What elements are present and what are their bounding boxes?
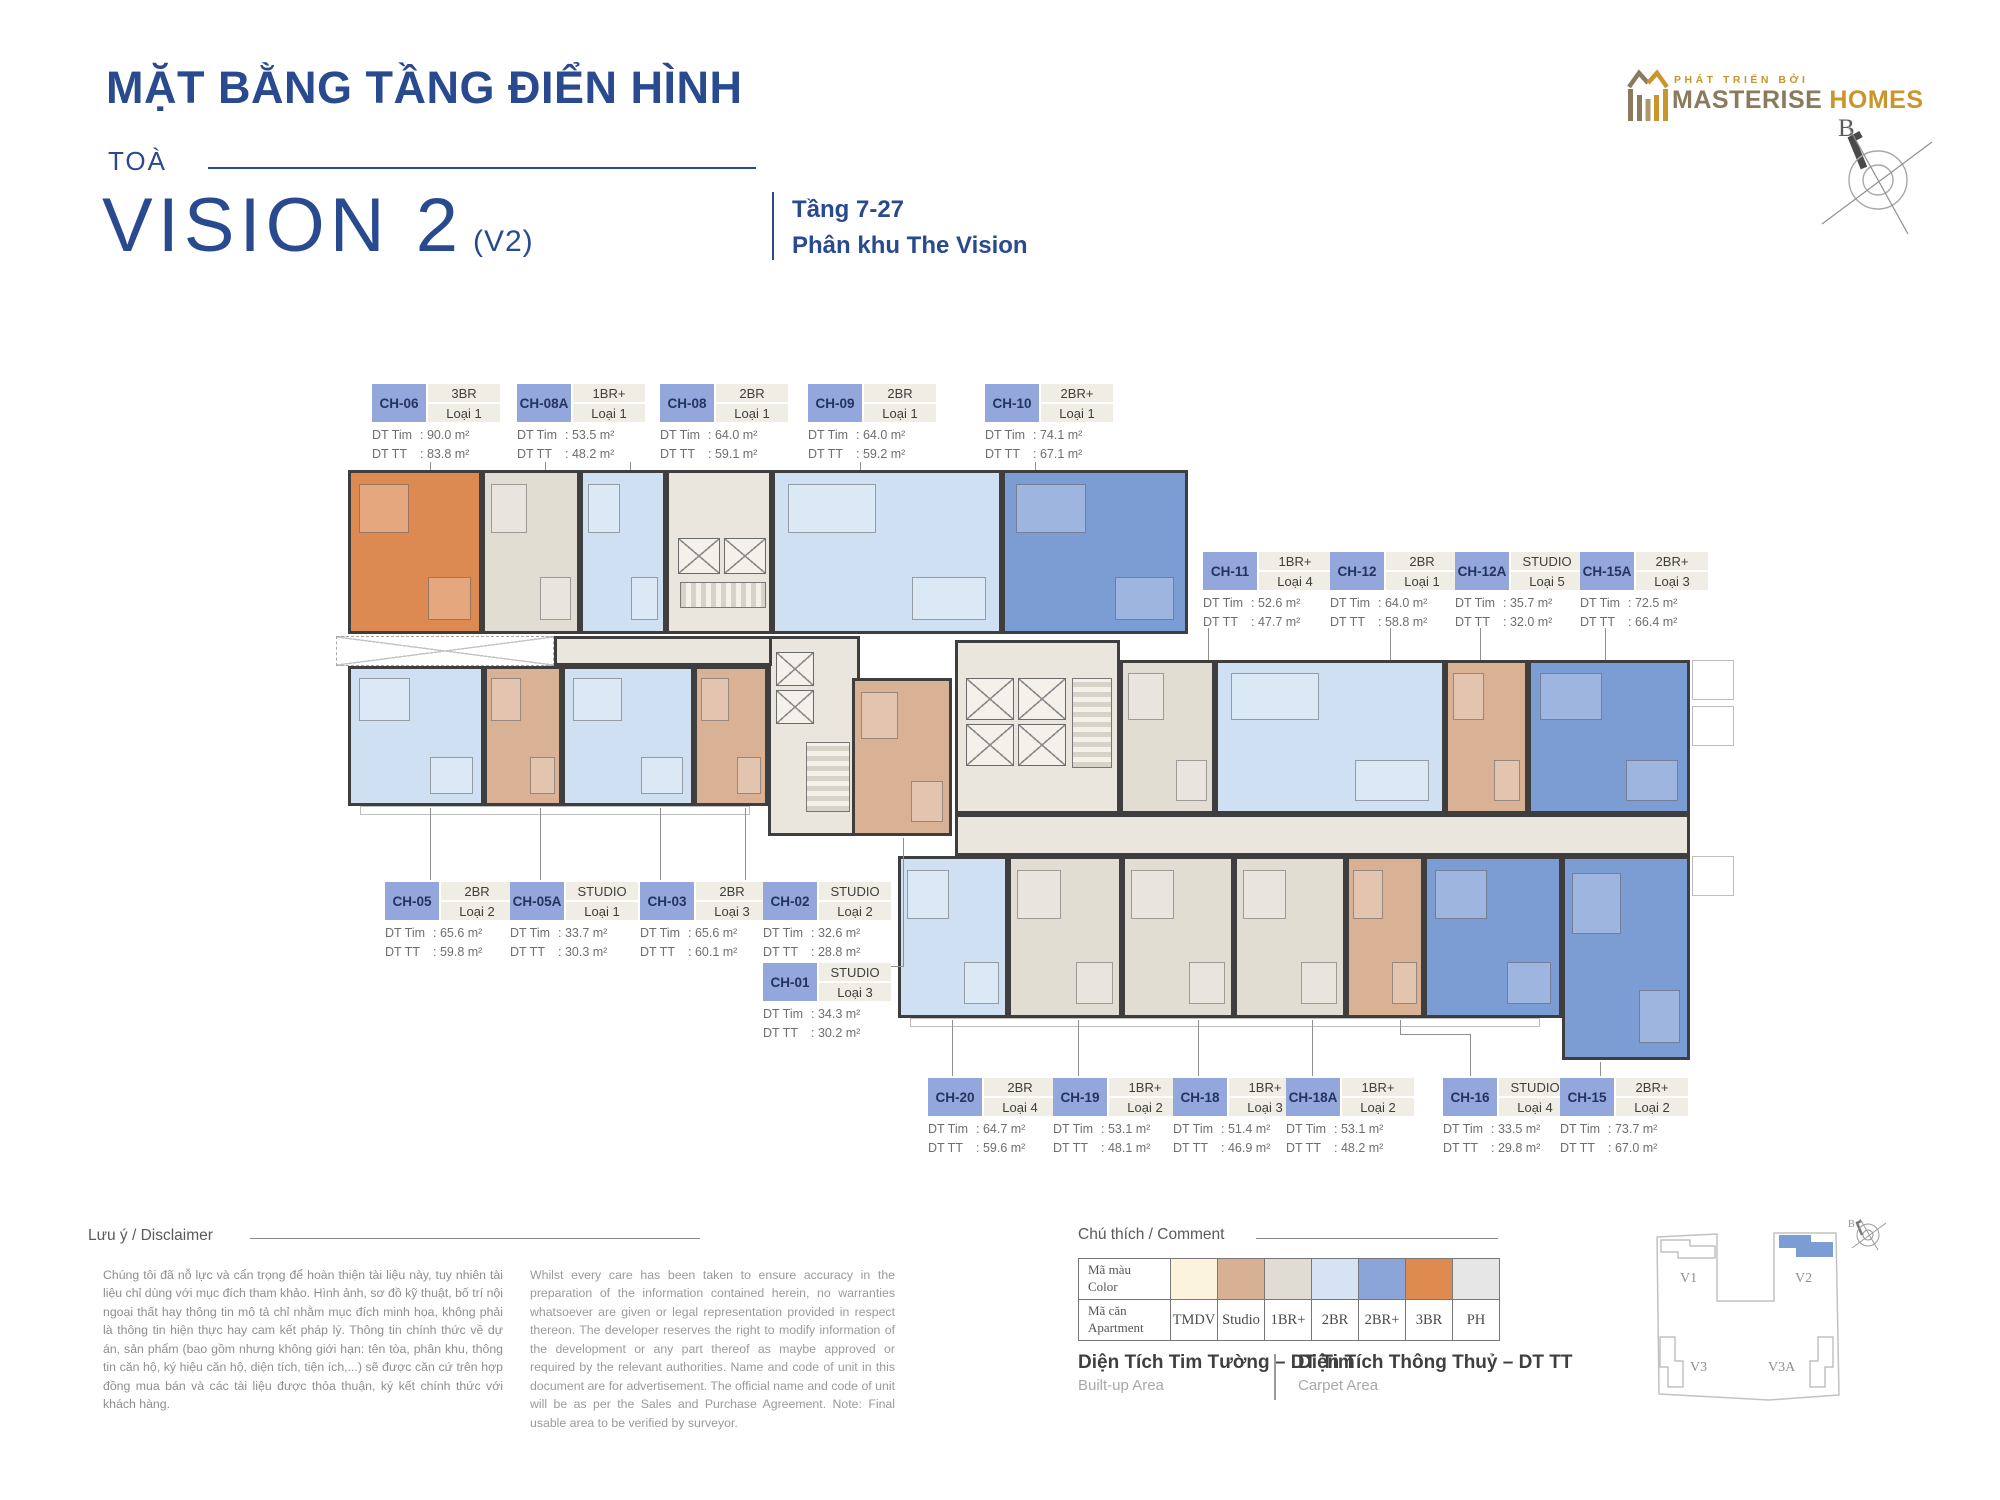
elevator-shaft-icon <box>1018 724 1066 766</box>
unit-type: STUDIO <box>1511 552 1583 570</box>
unit-area-carpet: DT TT: 30.2 m² <box>763 1024 933 1043</box>
unit-code-chip: CH-10 <box>985 384 1039 422</box>
elevator-shaft-icon <box>776 690 814 724</box>
unit-type: 2BR+ <box>1636 552 1708 570</box>
carpet-area-en: Carpet Area <box>1298 1377 1572 1394</box>
leader-line-CH-18A <box>1312 1020 1313 1076</box>
unit-variant: Loại 1 <box>566 902 638 920</box>
unit-variant: Loại 1 <box>428 404 500 422</box>
carpet-area-vn: Diện Tích Thông Thuỷ – DT TT <box>1298 1352 1572 1374</box>
unit-type: 2BR <box>1386 552 1458 570</box>
terrace-area <box>336 636 554 666</box>
plan-unit-CH-05 <box>348 666 484 806</box>
staircase-icon <box>680 582 766 608</box>
leader-line-CH-11 <box>1208 628 1209 660</box>
floor-range: Tầng 7-27 <box>792 196 904 224</box>
unit-code-chip: CH-08 <box>660 384 714 422</box>
unit-variant: Loại 2 <box>819 902 891 920</box>
unit-code-chip: CH-08A <box>517 384 571 422</box>
disclaimer-heading: Lưu ý / Disclaimer <box>88 1227 213 1245</box>
leader-line-CH-20 <box>952 1020 953 1076</box>
legend-swatch-3BR <box>1406 1259 1453 1300</box>
plan-core-area <box>955 814 1690 856</box>
staircase-icon <box>1072 678 1112 768</box>
building-v2-label: V2 <box>1795 1271 1812 1286</box>
unit-code-chip: CH-05 <box>385 882 439 920</box>
plan-unit-CH-19 <box>1008 856 1122 1018</box>
unit-code-chip: CH-20 <box>928 1078 982 1116</box>
legend-heading: Chú thích / Comment <box>1078 1226 1224 1244</box>
unit-code-chip: CH-16 <box>1443 1078 1497 1116</box>
leader-line-CH-05A <box>540 808 541 880</box>
unit-type: 2BR <box>441 882 513 900</box>
elevator-shaft-icon <box>966 724 1014 766</box>
unit-variant: Loại 1 <box>573 404 645 422</box>
leader-line-CH-05 <box>430 808 431 880</box>
plan-unit-CH-11 <box>1120 660 1215 814</box>
area-term-divider <box>1274 1354 1276 1400</box>
leader-line-CH-19 <box>1078 1020 1079 1076</box>
unit-code-chip: CH-05A <box>510 882 564 920</box>
unit-type: 1BR+ <box>573 384 645 402</box>
disclaimer-vietnamese: Chúng tôi đã nỗ lực và cẩn trọng để hoàn… <box>103 1266 503 1414</box>
unit-type: 2BR+ <box>1041 384 1113 402</box>
unit-type: 2BR <box>864 384 936 402</box>
unit-label-CH-09: CH-092BRLoại 1DT Tim: 64.0 m²DT TT: 59.2… <box>808 384 978 464</box>
unit-areas: DT Tim: 74.1 m²DT TT: 67.1 m² <box>985 426 1155 464</box>
disclaimer-rule <box>250 1238 700 1239</box>
unit-area-built: DT Tim: 73.7 m² <box>1560 1120 1730 1139</box>
unit-label-CH-10: CH-102BR+Loại 1DT Tim: 74.1 m²DT TT: 67.… <box>985 384 1155 464</box>
unit-area-built: DT Tim: 64.0 m² <box>660 426 830 445</box>
balcony-strip <box>1692 660 1734 700</box>
leader-line-CH-16 <box>1400 1034 1471 1035</box>
leader-line-CH-02 <box>745 808 746 880</box>
legend-label-3BR: 3BR <box>1406 1300 1453 1341</box>
masterise-logo-icon <box>1626 68 1670 124</box>
balcony-strip <box>1692 856 1734 896</box>
unit-code-chip: CH-06 <box>372 384 426 422</box>
unit-variant: Loại 1 <box>1386 572 1458 590</box>
plan-unit-CH-08 <box>580 470 666 634</box>
unit-areas: DT Tim: 34.3 m²DT TT: 30.2 m² <box>763 1005 933 1043</box>
unit-code-chip: CH-11 <box>1203 552 1257 590</box>
legend-row-header-color: Mã màuColor <box>1079 1259 1171 1300</box>
plan-core-area <box>554 636 772 666</box>
legend-swatch-2BR+ <box>1359 1259 1406 1300</box>
legend-label-1BR+: 1BR+ <box>1265 1300 1312 1341</box>
unit-area-carpet: DT TT: 28.8 m² <box>763 943 933 962</box>
elevator-shaft-icon <box>966 678 1014 720</box>
building-v3a-footprint <box>1810 1337 1833 1387</box>
elevator-shaft-icon <box>776 652 814 686</box>
plan-unit-CH-15A <box>1528 660 1690 814</box>
unit-variant: Loại 5 <box>1511 572 1583 590</box>
building-v3-label: V3 <box>1690 1360 1707 1375</box>
plan-unit-CH-18A <box>1234 856 1346 1018</box>
unit-label-CH-15: CH-152BR+Loại 2DT Tim: 73.7 m²DT TT: 67.… <box>1560 1078 1730 1158</box>
unit-type: STUDIO <box>819 882 891 900</box>
unit-areas: DT Tim: 72.5 m²DT TT: 66.4 m² <box>1580 594 1750 632</box>
unit-code-chip: CH-19 <box>1053 1078 1107 1116</box>
legend-swatch-PH <box>1453 1259 1500 1300</box>
unit-area-built: DT Tim: 53.1 m² <box>1286 1120 1456 1139</box>
site-map-compass-icon: B <box>1848 1219 1886 1250</box>
building-v1-footprint <box>1661 1240 1715 1258</box>
legend-label-TMDV: TMDV <box>1171 1300 1218 1341</box>
building-v2-footprint-highlighted <box>1779 1235 1833 1257</box>
unit-code-chip: CH-18 <box>1173 1078 1227 1116</box>
unit-code-chip: CH-18A <box>1286 1078 1340 1116</box>
tower-name-row: VISION 2(V2) <box>102 182 534 269</box>
plan-unit-CH-12 <box>1215 660 1445 814</box>
unit-variant: Loại 4 <box>1259 572 1331 590</box>
carpet-area-term: Diện Tích Thông Thuỷ – DT TT Carpet Area <box>1298 1352 1572 1394</box>
unit-variant: Loại 2 <box>1342 1098 1414 1116</box>
unit-areas: DT Tim: 32.6 m²DT TT: 28.8 m² <box>763 924 933 962</box>
balcony-strip <box>910 1018 1540 1027</box>
plan-unit-CH-01 <box>852 678 952 836</box>
legend-swatch-Studio <box>1218 1259 1265 1300</box>
leader-line-CH-15A <box>1605 628 1606 660</box>
unit-area-built: DT Tim: 72.5 m² <box>1580 594 1750 613</box>
plan-unit-CH-10 <box>1002 470 1188 634</box>
building-v1-label: V1 <box>1680 1271 1697 1286</box>
plan-unit-CH-18 <box>1122 856 1234 1018</box>
unit-area-carpet: DT TT: 67.1 m² <box>985 445 1155 464</box>
unit-label-CH-18A: CH-18A1BR+Loại 2DT Tim: 53.1 m²DT TT: 48… <box>1286 1078 1456 1158</box>
legend-label-2BR: 2BR <box>1312 1300 1359 1341</box>
unit-label-CH-08: CH-082BRLoại 1DT Tim: 64.0 m²DT TT: 59.1… <box>660 384 830 464</box>
plan-unit-CH-15 <box>1424 856 1562 1018</box>
unit-area-built: DT Tim: 32.6 m² <box>763 924 933 943</box>
unit-label-CH-02: CH-02STUDIOLoại 2DT Tim: 32.6 m²DT TT: 2… <box>763 882 933 962</box>
plan-unit-CH-05A <box>484 666 562 806</box>
elevator-shaft-icon <box>724 538 766 574</box>
leader-line-CH-16 <box>1470 1034 1471 1076</box>
leader-line-CH-18 <box>1198 1020 1199 1076</box>
unit-area-carpet: DT TT: 48.2 m² <box>1286 1139 1456 1158</box>
tower-name: VISION 2 <box>102 183 463 268</box>
unit-area-carpet: DT TT: 67.0 m² <box>1560 1139 1730 1158</box>
leader-line-CH-15 <box>1600 1062 1601 1076</box>
plan-unit-CH-08A <box>482 470 580 634</box>
tower-underline <box>208 167 756 169</box>
leader-line-CH-08 <box>630 462 631 470</box>
unit-type: 2BR+ <box>1616 1078 1688 1096</box>
unit-area-built: DT Tim: 74.1 m² <box>985 426 1155 445</box>
disclaimer-english: Whilst every care has been taken to ensu… <box>530 1266 895 1432</box>
tower-prefix: TOÀ <box>108 146 167 177</box>
leader-line-CH-01 <box>903 838 904 966</box>
legend-label-PH: PH <box>1453 1300 1500 1341</box>
tower-code: (V2) <box>473 225 534 258</box>
elevator-shaft-icon <box>1018 678 1066 720</box>
plan-unit-CH-12A <box>1445 660 1528 814</box>
unit-variant: Loại 3 <box>1636 572 1708 590</box>
unit-code-chip: CH-15 <box>1560 1078 1614 1116</box>
legend-swatch-2BR <box>1312 1259 1359 1300</box>
developer-tagline: PHÁT TRIỂN BỞI <box>1674 74 1808 86</box>
unit-variant: Loại 4 <box>984 1098 1056 1116</box>
unit-type: 2BR <box>984 1078 1056 1096</box>
unit-type: STUDIO <box>819 963 891 981</box>
legend-swatch-TMDV <box>1171 1259 1218 1300</box>
unit-code-chip: CH-02 <box>763 882 817 920</box>
legend-row-header-apartment: Mã cănApartment <box>1079 1300 1171 1341</box>
unit-code-chip: CH-15A <box>1580 552 1634 590</box>
unit-areas: DT Tim: 53.1 m²DT TT: 48.2 m² <box>1286 1120 1456 1158</box>
plan-unit-CH-06 <box>348 470 482 634</box>
elevator-shaft-icon <box>678 538 720 574</box>
unit-variant: Loại 3 <box>696 902 768 920</box>
legend-rule <box>1256 1238 1498 1239</box>
unit-variant: Loại 2 <box>1109 1098 1181 1116</box>
unit-type: STUDIO <box>566 882 638 900</box>
leader-line-CH-16 <box>1400 1020 1401 1034</box>
balcony-strip <box>1692 706 1734 746</box>
unit-areas: DT Tim: 73.7 m²DT TT: 67.0 m² <box>1560 1120 1730 1158</box>
legend-table: Mã màuColorMã cănApartmentTMDVStudio1BR+… <box>1078 1258 1500 1341</box>
plan-unit-CH-09 <box>772 470 1002 634</box>
unit-variant: Loại 1 <box>864 404 936 422</box>
subdivision-name: Phân khu The Vision <box>792 232 1028 260</box>
legend-label-2BR+: 2BR+ <box>1359 1300 1406 1341</box>
staircase-icon <box>806 742 850 812</box>
unit-label-CH-15A: CH-15A2BR+Loại 3DT Tim: 72.5 m²DT TT: 66… <box>1580 552 1750 632</box>
unit-type: 2BR <box>716 384 788 402</box>
site-map: V1 V2 V3 V3A B <box>1640 1215 1900 1410</box>
page-title: MẶT BẰNG TẦNG ĐIỂN HÌNH <box>106 62 742 114</box>
unit-type: 1BR+ <box>1109 1078 1181 1096</box>
unit-code-chip: CH-01 <box>763 963 817 1001</box>
unit-variant: Loại 2 <box>441 902 513 920</box>
leader-line-CH-12 <box>1390 628 1391 660</box>
brand-masterise: MASTERISE <box>1672 86 1822 114</box>
leader-line-CH-12A <box>1480 628 1481 660</box>
unit-type: 1BR+ <box>1259 552 1331 570</box>
unit-label-CH-01: CH-01STUDIOLoại 3DT Tim: 34.3 m²DT TT: 3… <box>763 963 933 1043</box>
plan-unit-CH-16 <box>1346 856 1424 1018</box>
legend-swatch-1BR+ <box>1265 1259 1312 1300</box>
plan-unit-CH-02 <box>694 666 768 806</box>
unit-code-chip: CH-12A <box>1455 552 1509 590</box>
unit-code-chip: CH-09 <box>808 384 862 422</box>
plan-unit-CH-15-wing <box>1562 856 1690 1060</box>
unit-code-chip: CH-03 <box>640 882 694 920</box>
unit-type: 1BR+ <box>1342 1078 1414 1096</box>
unit-area-built: DT Tim: 64.0 m² <box>808 426 978 445</box>
legend-label-Studio: Studio <box>1218 1300 1265 1341</box>
unit-code-chip: CH-12 <box>1330 552 1384 590</box>
north-compass-icon: B <box>1802 100 1937 235</box>
building-v3a-label: V3A <box>1768 1360 1796 1375</box>
site-compass-north-label: B <box>1848 1219 1855 1230</box>
unit-variant: Loại 2 <box>1616 1098 1688 1116</box>
unit-variant: Loại 1 <box>1041 404 1113 422</box>
building-v3-footprint <box>1660 1337 1683 1387</box>
unit-variant: Loại 3 <box>819 983 891 1001</box>
unit-area-built: DT Tim: 34.3 m² <box>763 1005 933 1024</box>
unit-areas: DT Tim: 64.0 m²DT TT: 59.2 m² <box>808 426 978 464</box>
unit-area-carpet: DT TT: 66.4 m² <box>1580 613 1750 632</box>
unit-area-carpet: DT TT: 59.1 m² <box>660 445 830 464</box>
unit-type: 3BR <box>428 384 500 402</box>
unit-areas: DT Tim: 64.0 m²DT TT: 59.1 m² <box>660 426 830 464</box>
plan-unit-CH-03 <box>562 666 694 806</box>
header-divider <box>772 192 774 260</box>
unit-type: 2BR <box>696 882 768 900</box>
leader-line-CH-03 <box>660 808 661 880</box>
balcony-strip <box>360 806 750 815</box>
unit-area-carpet: DT TT: 59.2 m² <box>808 445 978 464</box>
unit-variant: Loại 1 <box>716 404 788 422</box>
